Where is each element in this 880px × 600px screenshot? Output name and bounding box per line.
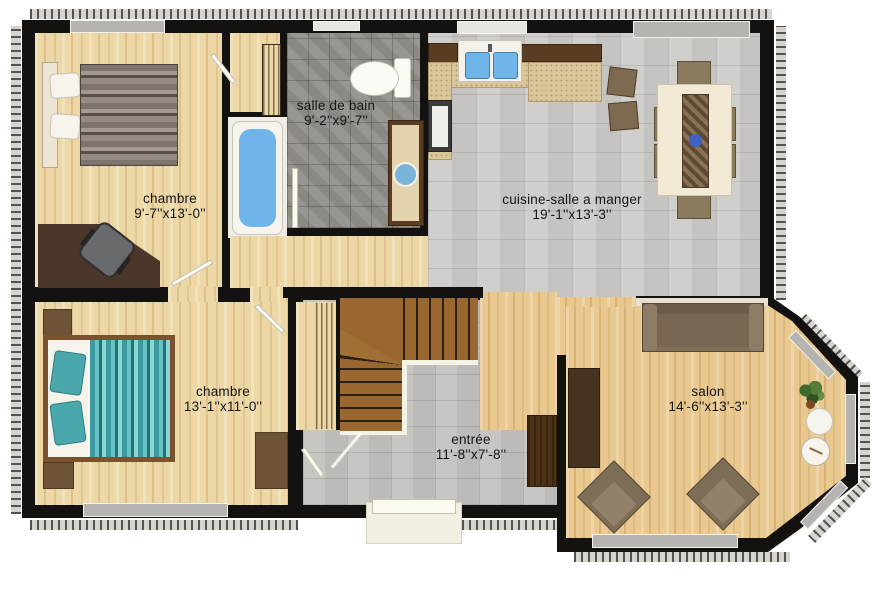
- label-chambre-2-dims: 13'-1''x11'-0'': [133, 399, 313, 414]
- eave-hatch-bottom-entry: [462, 520, 560, 530]
- eave-hatch-right: [776, 26, 786, 300]
- kitchen-faucet: [488, 44, 492, 52]
- dresser: [255, 432, 288, 489]
- window-kitchen-sink: [457, 21, 527, 34]
- kitchen-peninsula: [528, 62, 602, 102]
- nightstand-bottom: [43, 462, 74, 489]
- vanity-sink: [393, 162, 418, 187]
- kitchen-sink-unit: [458, 40, 522, 82]
- floor-passage: [480, 292, 557, 430]
- threshold-chambre-1-door: [168, 287, 218, 302]
- sofa-arm-right: [749, 304, 763, 351]
- kitchen-sink-basin-right: [493, 52, 518, 79]
- staircase: [340, 298, 478, 435]
- sofa-seat: [657, 314, 749, 347]
- bed-1-duvet: [80, 64, 178, 166]
- dining-centerpiece: [689, 134, 702, 147]
- floor-hall: [230, 236, 428, 288]
- threshold-kitchen-salon: [557, 297, 636, 307]
- sofa-back: [643, 304, 763, 314]
- stairs-stringer-vertical: [402, 360, 407, 435]
- window-bay-right: [845, 394, 856, 464]
- sofa-arm-left: [643, 304, 657, 351]
- vanity: [388, 120, 424, 226]
- bar-stool-1: [606, 66, 637, 97]
- closet-louver-entree: [316, 303, 334, 429]
- label-salon-dims: 14'-6''x13'-3'': [618, 399, 798, 414]
- tv-console: [568, 368, 600, 468]
- side-table-flower: [806, 408, 833, 435]
- floor-plan: chambre 9'-7''x13'-0'' salle de bain 9'-…: [0, 0, 880, 600]
- stove: [428, 100, 452, 152]
- label-entree: entrée 11'-8''x7'-8'': [381, 432, 561, 462]
- label-chambre-2: chambre 13'-1''x11'-0'': [133, 384, 313, 414]
- threshold-salon-opening: [557, 305, 566, 355]
- side-table-round: [801, 437, 830, 466]
- kitchen-cabinet-upper: [520, 44, 602, 62]
- label-cuisine: cuisine-salle a manger 19'-1''x13'-3'': [472, 192, 672, 222]
- label-salle-de-bain: salle de bain 9'-2''x9'-7'': [246, 98, 426, 128]
- bar-stool-2: [608, 101, 639, 131]
- wall-above-stairs: [283, 287, 483, 298]
- nightstand-top: [43, 309, 72, 336]
- label-entree-dims: 11'-8''x7'-8'': [381, 447, 561, 462]
- stairs-lower-run: [340, 365, 402, 435]
- kitchen-cabinet-corner: [428, 43, 458, 63]
- kitchen-sink-basin-left: [465, 52, 490, 79]
- front-door: [372, 499, 456, 514]
- eave-hatch-top: [30, 9, 772, 19]
- label-salon-name: salon: [618, 384, 798, 399]
- label-chambre-1-name: chambre: [80, 191, 260, 206]
- stairs-upper-run: [403, 298, 478, 365]
- stove-front: [432, 106, 448, 147]
- toilet-bowl: [350, 61, 399, 96]
- label-entree-name: entrée: [381, 432, 561, 447]
- eave-hatch-bottom-salon: [574, 552, 790, 562]
- label-chambre-1-dims: 9'-7''x13'-0'': [80, 206, 260, 221]
- dining-table: [657, 84, 732, 196]
- label-cuisine-dims: 19'-1''x13'-3'': [472, 207, 672, 222]
- label-chambre-2-name: chambre: [133, 384, 313, 399]
- label-salle-de-bain-name: salle de bain: [246, 98, 426, 113]
- label-salle-de-bain-dims: 9'-2''x9'-7'': [246, 113, 426, 128]
- stairs-winders: [340, 298, 403, 365]
- window-chambre-1: [70, 20, 165, 33]
- label-salon: salon 14'-6''x13'-3'': [618, 384, 798, 414]
- bed-2-pillow-bottom: [49, 400, 87, 446]
- side-table-detail: [809, 447, 823, 455]
- bed-1-pillow-bottom: [49, 113, 81, 140]
- window-chambre-2: [83, 503, 228, 517]
- door-salle-de-bain: [292, 168, 298, 228]
- bed-1-pillow-top: [49, 72, 81, 99]
- sofa: [642, 303, 764, 352]
- label-cuisine-name: cuisine-salle a manger: [472, 192, 672, 207]
- eave-hatch-bottom-left: [30, 520, 298, 530]
- plant-pot: [806, 400, 815, 409]
- label-chambre-1: chambre 9'-7''x13'-0'': [80, 191, 260, 221]
- window-dining: [633, 21, 750, 38]
- bed-1: [42, 62, 182, 168]
- eave-hatch-left: [11, 26, 21, 514]
- bed-2-pillow-top: [49, 350, 87, 396]
- window-salle-de-bain: [313, 21, 360, 31]
- eave-hatch-bay-right: [860, 382, 870, 478]
- window-salon-bottom: [592, 534, 738, 548]
- stairs-stringer-horizontal: [402, 360, 478, 365]
